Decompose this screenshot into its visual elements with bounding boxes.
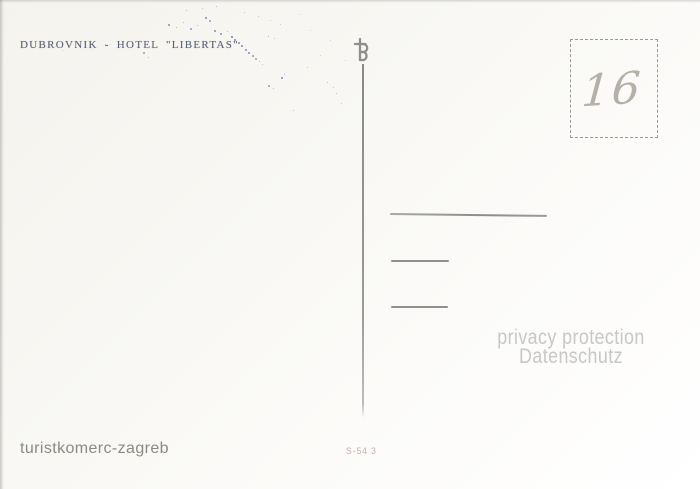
ink-speckle-dot [202,8,203,9]
ink-speckle-dot [55,46,56,47]
ink-speckle-dot [238,42,240,44]
ink-speckle-dot [255,58,257,60]
ink-speckle-dot [197,25,198,26]
publisher-imprint: turistkomerc-zagreb [20,440,169,458]
ink-speckle-dot [216,6,217,7]
scan-edge-top [0,0,700,3]
ink-speckle-dot [186,10,187,11]
ink-speckle-dot [209,20,211,22]
ink-speckle-dot [268,85,270,87]
ink-speckle-dot [148,57,149,58]
ink-speckle-dot [205,17,207,19]
ink-speckle-dot [143,52,145,54]
ink-speckle-dot [327,82,328,83]
ink-speckle-dot [176,27,177,28]
ink-speckle-dot [227,31,228,32]
center-divider-line [362,64,364,418]
address-line-2 [391,260,449,262]
address-line-3 [391,306,448,308]
ink-speckle-dot [310,30,311,31]
ink-speckle-dot [320,55,321,56]
ink-speckle-dot [183,22,184,23]
ink-speckle-dot [345,60,346,61]
ink-speckle-dot [262,64,263,65]
ink-speckle-dot [168,24,170,26]
ink-speckle-dot [241,45,243,47]
ink-speckle-dot [244,12,245,13]
ink-speckle-dot [220,33,222,35]
ink-speckle-dot [281,77,283,79]
ink-speckle-dot [248,52,250,54]
privacy-watermark: privacy protection Datenschutz [482,328,661,366]
ink-speckle-dot [273,88,274,89]
ink-speckle-dot [268,36,269,37]
ink-speckle-dot [307,67,308,68]
postcard-caption: DUBROVNIK - HOTEL "LIBERTAS" [20,39,239,51]
ink-speckle-dot [330,40,331,41]
ink-speckle-dot [231,36,233,38]
ink-speckle-dot [300,14,301,15]
ink-speckle-dot [214,30,216,32]
ink-speckle-dot [245,49,247,51]
ink-speckle-dot [293,110,294,111]
ink-speckle-dot [190,28,192,30]
ink-speckle-dot [280,24,281,25]
address-line-1 [390,213,547,216]
privacy-watermark-line2: Datenschutz [482,347,661,366]
ink-speckle-dot [234,39,236,41]
postcard-back: DUBROVNIK - HOTEL "LIBERTAS" 16 privacy … [0,0,700,489]
scan-edge-left [0,0,4,489]
ink-speckle-dot [259,61,260,62]
turistkomerc-monogram-icon [353,37,373,64]
ink-speckle-dot [341,103,342,104]
print-code: S-54 3 [346,446,377,456]
ink-speckle-dot [274,38,275,39]
ink-speckle-dot [252,55,254,57]
ink-speckle-dot [258,16,259,17]
ink-speckle-dot [336,93,337,94]
ink-speckle-dot [270,20,271,21]
ink-speckle-dot [284,74,285,75]
handwritten-number: 16 [580,62,654,118]
ink-speckle-dot [333,87,334,88]
